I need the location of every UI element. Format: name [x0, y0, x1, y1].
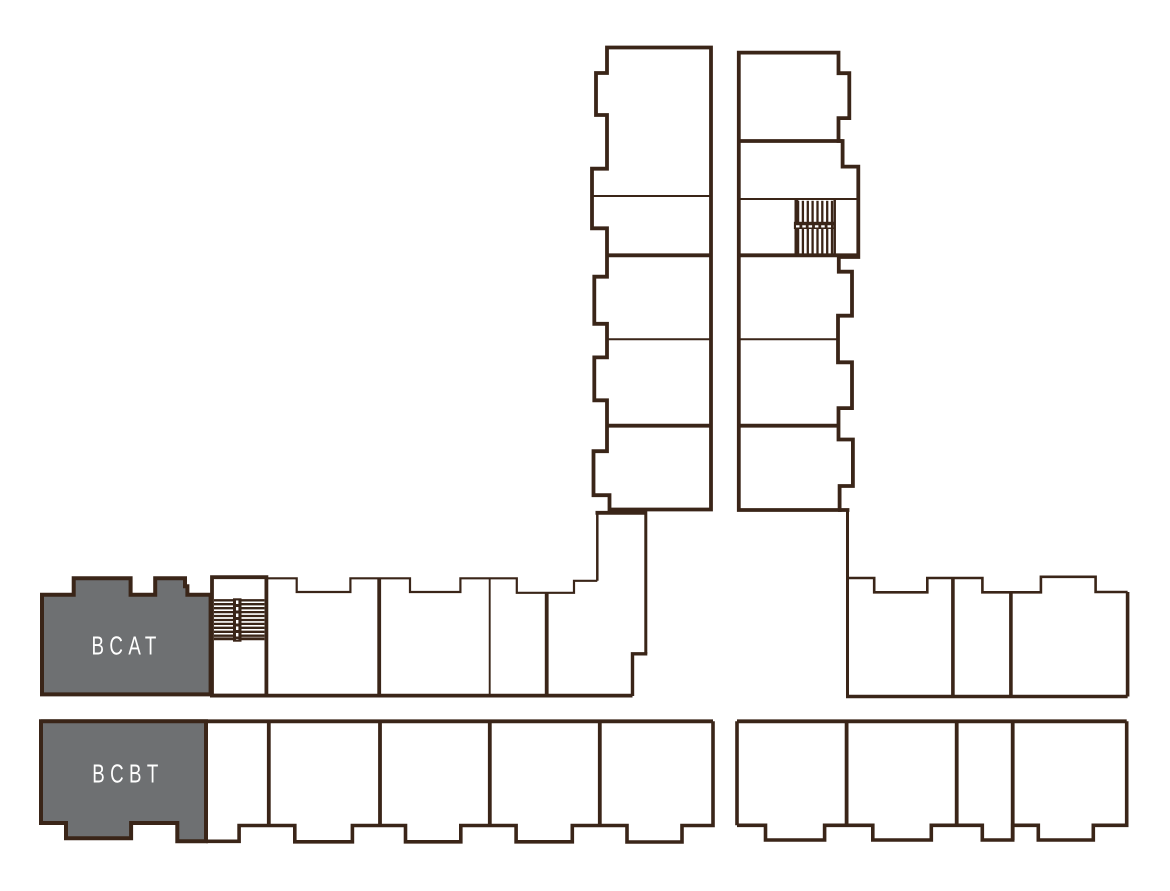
svg-text:BCBT: BCBT [92, 758, 164, 788]
svg-text:BCAT: BCAT [92, 630, 162, 660]
